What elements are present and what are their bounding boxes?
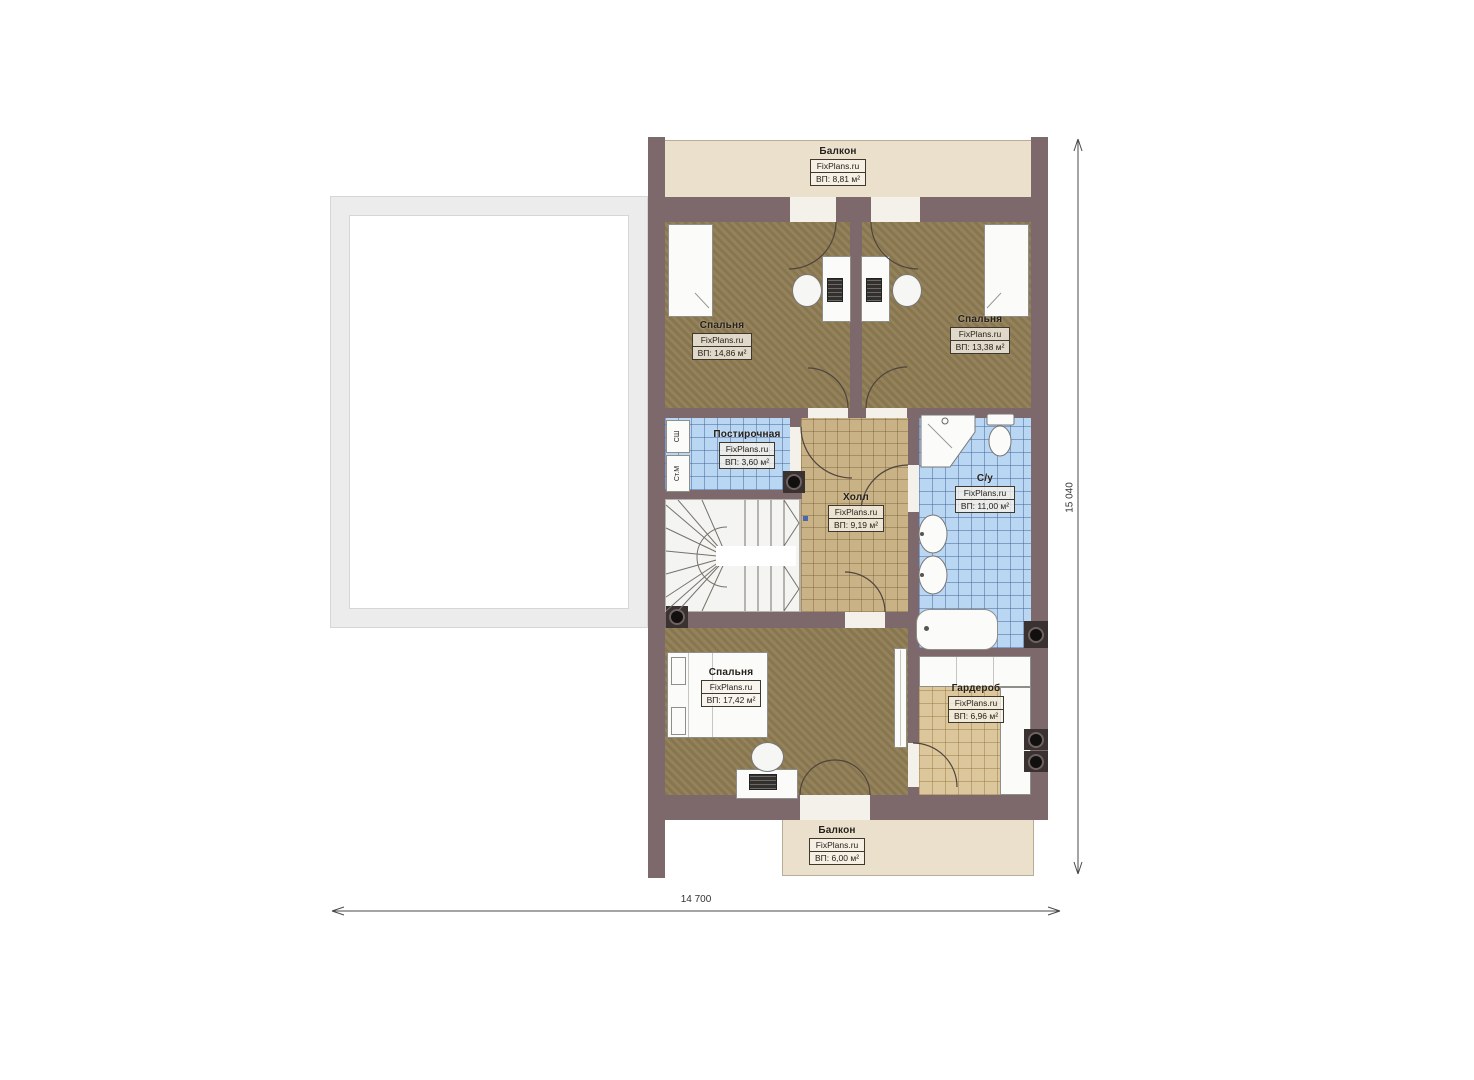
label-wardrobe: Гардероб FixPlans.ru ВП: 6,96 м²	[906, 683, 1046, 723]
room-area: ВП: 6,00 м²	[810, 852, 864, 864]
label-bathroom: С/у FixPlans.ru ВП: 11,00 м²	[915, 473, 1055, 513]
door-bedroom-left	[808, 408, 848, 418]
room-area: ВП: 11,00 м²	[956, 500, 1014, 512]
room-name: Балкон	[818, 825, 855, 836]
door-balcony-right	[871, 197, 920, 222]
chair-master	[751, 742, 784, 772]
room-name: Балкон	[819, 146, 856, 157]
chair-right	[892, 274, 922, 307]
pillow-master-2	[671, 707, 686, 735]
door-wardrobe	[908, 743, 919, 787]
brand-link: FixPlans.ru	[810, 839, 864, 852]
room-name: Спальня	[709, 667, 754, 678]
vent-hall	[783, 471, 805, 493]
room-name: Спальня	[700, 320, 745, 331]
brand-link: FixPlans.ru	[949, 697, 1003, 710]
door-bedroom-right	[866, 408, 907, 418]
brand-link: FixPlans.ru	[702, 681, 761, 694]
room-area: ВП: 6,96 м²	[949, 710, 1003, 722]
brand-link: FixPlans.ru	[811, 160, 865, 173]
laptop-right	[866, 278, 882, 302]
room-area: ВП: 9,19 м²	[829, 519, 883, 531]
chair-left	[792, 274, 822, 307]
sliding-panel-line	[900, 650, 901, 746]
room-area: ВП: 14,86 м²	[693, 347, 752, 359]
vent-bathroom	[1024, 621, 1048, 648]
brand-link: FixPlans.ru	[693, 334, 752, 347]
label-balcony-bottom: Балкон FixPlans.ru ВП: 6,00 м²	[767, 825, 907, 865]
room-area: ВП: 3,60 м²	[720, 456, 774, 468]
room-name: С/у	[977, 473, 993, 484]
terrace-roof-outline	[330, 196, 648, 628]
bed-right	[984, 224, 1029, 317]
laptop-master	[749, 774, 777, 790]
room-name: Спальня	[958, 314, 1003, 325]
room-name: Постирочная	[713, 429, 780, 440]
bathtub	[916, 609, 998, 650]
brand-link: FixPlans.ru	[829, 506, 883, 519]
brand-link: FixPlans.ru	[956, 487, 1014, 500]
laptop-left	[827, 278, 843, 302]
room-area: ВП: 17,42 м²	[702, 694, 761, 706]
vent-wardrobe-2	[1024, 751, 1048, 772]
wall-left	[648, 137, 665, 878]
label-balcony-top: Балкон FixPlans.ru ВП: 8,81 м²	[768, 146, 908, 186]
floor-plan-canvas: СШ Ст.М	[0, 0, 1474, 1080]
dimension-width: 14 700	[646, 894, 746, 905]
room-name: Гардероб	[952, 683, 1001, 694]
room-name: Холл	[843, 492, 869, 503]
closet-divider-2	[993, 657, 994, 686]
label-bedroom-master: Спальня FixPlans.ru ВП: 17,42 м²	[661, 667, 801, 707]
closet-divider-1	[956, 657, 957, 686]
vent-stairs	[666, 606, 688, 628]
terrace-roof-inner	[349, 215, 629, 609]
label-laundry: Постирочная FixPlans.ru ВП: 3,60 м²	[677, 429, 817, 469]
brand-link: FixPlans.ru	[951, 328, 1010, 341]
label-hall: Холл FixPlans.ru ВП: 9,19 м²	[786, 492, 926, 532]
room-area: ВП: 8,81 м²	[811, 173, 865, 185]
room-staircase	[665, 499, 800, 612]
door-balcony-bottom	[800, 795, 870, 820]
door-bedroom-master	[845, 612, 885, 628]
vent-wardrobe-1	[1024, 729, 1048, 750]
brand-link: FixPlans.ru	[720, 443, 774, 456]
label-bedroom-right: Спальня FixPlans.ru ВП: 13,38 м²	[910, 314, 1050, 354]
door-balcony-left	[790, 197, 836, 222]
wall-top	[648, 197, 1048, 222]
dimension-height: 15 040	[1065, 468, 1076, 528]
bed-left	[668, 224, 713, 317]
label-bedroom-left: Спальня FixPlans.ru ВП: 14,86 м²	[652, 320, 792, 360]
room-area: ВП: 13,38 м²	[951, 341, 1010, 353]
